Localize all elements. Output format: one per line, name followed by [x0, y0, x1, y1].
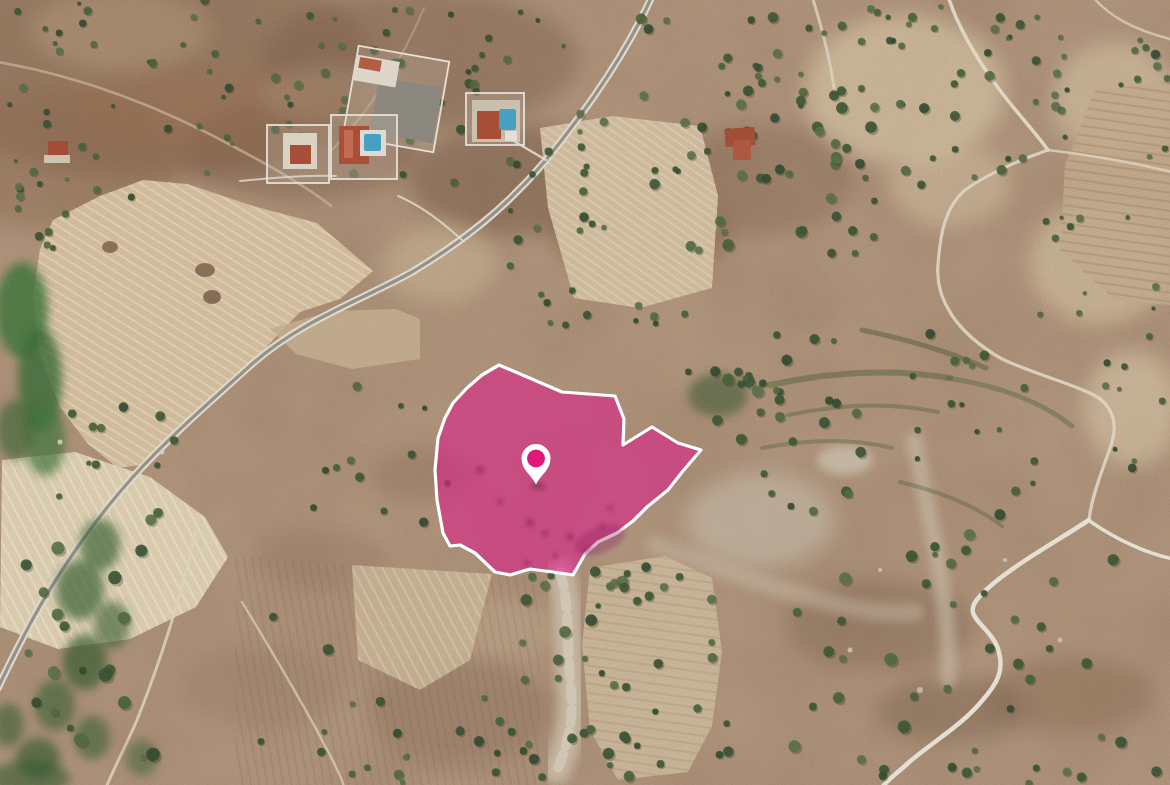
satellite-scene — [0, 0, 1170, 785]
pin-shadow — [530, 483, 546, 490]
map-viewport[interactable] — [0, 0, 1170, 785]
pin-dot — [527, 450, 545, 468]
